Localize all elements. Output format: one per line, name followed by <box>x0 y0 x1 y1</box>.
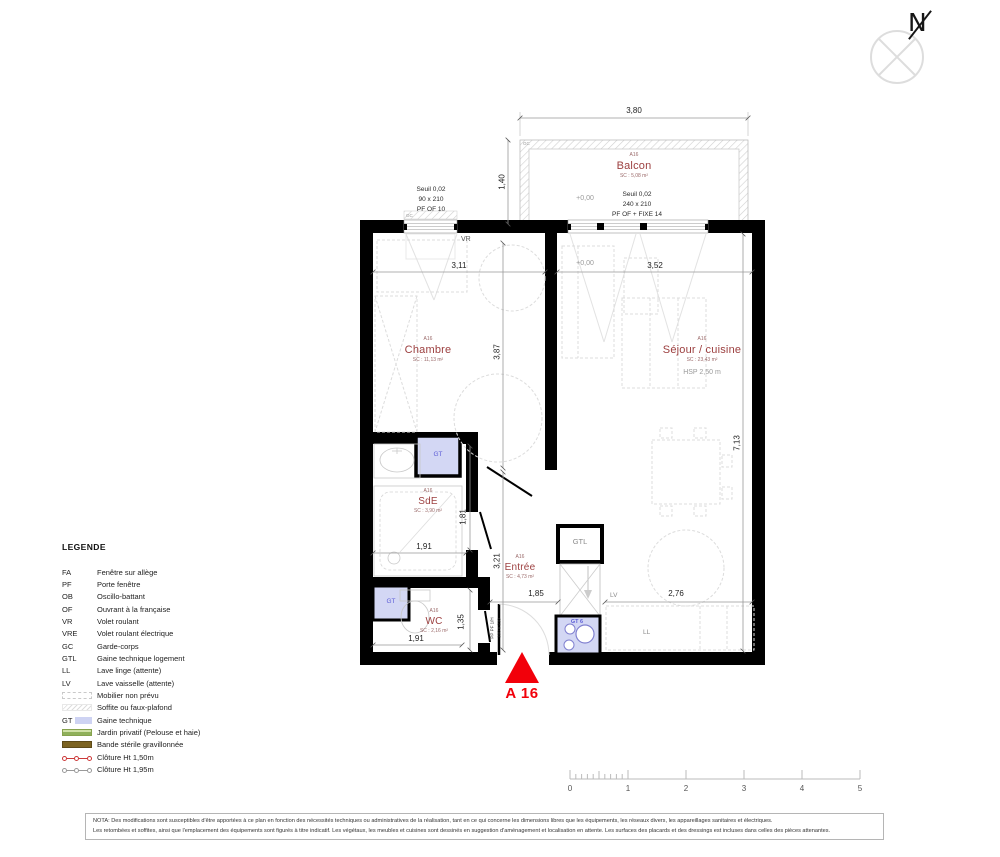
entree-area: SC : 4,73 m² <box>505 574 536 581</box>
chambre-window-size: 90 x 210 <box>417 195 446 205</box>
room-label-entree: A16 Entrée SC : 4,73 m² <box>505 554 536 580</box>
room-label-chambre: A16 Chambre SC : 11,13 m² <box>405 336 452 363</box>
legend-item-ll: LLLave linge (attente) <box>62 666 302 678</box>
legend-item-mobilier: Mobilier non prévu <box>62 691 302 703</box>
dim-sde-width: 1,91 <box>416 542 432 551</box>
room-label-wc: A16 WC SC : 2,16 m² <box>420 608 448 634</box>
sejour-name: Séjour / cuisine <box>663 343 741 357</box>
sejour-window <box>568 220 708 233</box>
dim-sde-depth: 1,81 <box>459 509 468 525</box>
entry-arrow <box>584 566 592 599</box>
dim-side-depth: 7,13 <box>733 435 742 451</box>
dim-entree-width: 1,85 <box>528 589 544 598</box>
unit-marker-triangle <box>505 652 539 683</box>
north-label: N <box>908 8 927 37</box>
nota-line-2: Les retombées et soffites, ainsi que l'e… <box>93 827 876 837</box>
legend-item-pf: PFPorte fenêtre <box>62 580 302 592</box>
balcon-window-label: Seuil 0,02 240 x 210 PF OF + FIXE 14 <box>612 190 662 219</box>
cloture-195-swatch <box>62 766 92 773</box>
scale-label-0: 0 <box>568 784 572 793</box>
chambre-window-seuil: Seuil 0,02 <box>417 185 446 195</box>
scale-label-1: 1 <box>626 784 630 793</box>
entry-door-type: PP PF 1/H <box>489 617 496 638</box>
gt-wc-tag: GT <box>386 598 395 605</box>
balcon-window-size: 240 x 210 <box>612 200 662 210</box>
mobilier-swatch <box>62 692 92 699</box>
sejour-hsp: HSP 2,50 m <box>663 368 741 377</box>
chambre-name: Chambre <box>405 343 452 357</box>
legend-item-gc: GCGarde-corps <box>62 642 302 654</box>
dim-entree-depth: 3,21 <box>493 553 502 569</box>
dim-wc-depth: 1,35 <box>457 614 466 630</box>
bande-swatch <box>62 741 92 748</box>
legend-item-soffite: Soffite ou faux-plafond <box>62 703 302 715</box>
dim-chambre-depth: 3,87 <box>493 344 502 360</box>
legend-item-vre: VREVolet roulant électrique <box>62 629 302 641</box>
legend-item-bande: Bande stérile gravillonnée <box>62 740 302 752</box>
legend-title: LEGENDE <box>62 542 106 552</box>
legend-item-gt: GTGaine technique <box>62 716 302 728</box>
chambre-window-type: PF OF 10 <box>417 205 446 215</box>
wc-name: WC <box>420 615 448 628</box>
ll-tag: LL <box>643 629 650 636</box>
legend-item-gtl: GTLGaine technique logement <box>62 654 302 666</box>
dim-cuisine-width: 2,76 <box>668 589 684 598</box>
legend-item-cloture-150: Clôture Ht 1,50m <box>62 753 302 765</box>
legend-item-ob: OBOscillo-battant <box>62 592 302 604</box>
compass-circle <box>871 31 923 83</box>
gc-balcon-tag: GC <box>523 141 530 146</box>
dim-sejour-width: 3,52 <box>647 261 663 270</box>
gt6-tag: GT 6 <box>571 619 583 625</box>
nota-line-1: NOTA: Des modifications sont susceptible… <box>93 817 876 827</box>
legend-item-of: OFOuvrant à la française <box>62 605 302 617</box>
dim-balcon-width: 3,80 <box>626 106 642 115</box>
soffite-swatch <box>62 704 92 711</box>
legend-item-cloture-195: Clôture Ht 1,95m <box>62 765 302 777</box>
level-balcon: +0,00 <box>576 195 594 202</box>
sejour-area: SC : 23,43 m² <box>663 357 741 364</box>
entry-door-size: 100 x 210 <box>496 617 503 638</box>
lv-tag: LV <box>610 592 617 599</box>
balcon-window-type: PF OF + FIXE 14 <box>612 210 662 220</box>
floorplan-canvas: N A16 Balcon SC : 5,08 m² A16 Chambre SC… <box>0 0 1000 857</box>
level-sejour: +0,00 <box>576 260 594 267</box>
vr-tag: VR <box>461 236 471 243</box>
gtl-tag: GTL <box>573 537 588 546</box>
legend-item-vr: VRVolet roulant <box>62 617 302 629</box>
room-label-balcon: A16 Balcon SC : 5,08 m² <box>617 152 652 179</box>
legend-item-lv: LVLave vaisselle (attente) <box>62 679 302 691</box>
entree-name: Entrée <box>505 561 536 574</box>
balcon-area: SC : 5,08 m² <box>617 173 652 180</box>
legend-item-fa: FAFenêtre sur allège <box>62 568 302 580</box>
chambre-area: SC : 11,13 m² <box>405 357 452 364</box>
legend-item-jardin: Jardin privatif (Pelouse et haie) <box>62 728 302 740</box>
scale-label-3: 3 <box>742 784 746 793</box>
unit-marker-label: A 16 <box>505 685 538 702</box>
nota-box: NOTA: Des modifications sont susceptible… <box>85 813 884 840</box>
north-arrow: N <box>908 8 927 37</box>
entry-door-label: PP PF 1/H 100 x 210 <box>489 617 503 638</box>
gc-window-tag: GC <box>406 213 413 218</box>
scalebar-ticks <box>570 770 860 779</box>
balcon-window-seuil: Seuil 0,02 <box>612 190 662 200</box>
legend: LEGENDE FAFenêtre sur allège PFPorte fen… <box>62 540 302 780</box>
room-label-sejour: A16 Séjour / cuisine SC : 23,43 m² HSP 2… <box>663 336 741 377</box>
dim-balcon-depth: 1,40 <box>498 174 507 190</box>
room-label-sde: A16 SdE SC : 3,90 m² <box>414 488 442 514</box>
jardin-swatch <box>62 729 92 736</box>
sde-name: SdE <box>414 495 442 508</box>
chambre-window-label: Seuil 0,02 90 x 210 PF OF 10 <box>417 185 446 214</box>
gt-sde-tag: GT <box>433 451 442 458</box>
dim-wc-width: 1,91 <box>408 634 424 643</box>
scale-label-5: 5 <box>858 784 862 793</box>
cloture-150-swatch <box>62 754 92 761</box>
dim-chambre-width: 3,11 <box>452 261 467 270</box>
scale-label-2: 2 <box>684 784 688 793</box>
scale-label-4: 4 <box>800 784 804 793</box>
sde-area: SC : 3,90 m² <box>414 508 442 515</box>
balcon-name: Balcon <box>617 159 652 173</box>
gt-swatch <box>75 717 92 724</box>
